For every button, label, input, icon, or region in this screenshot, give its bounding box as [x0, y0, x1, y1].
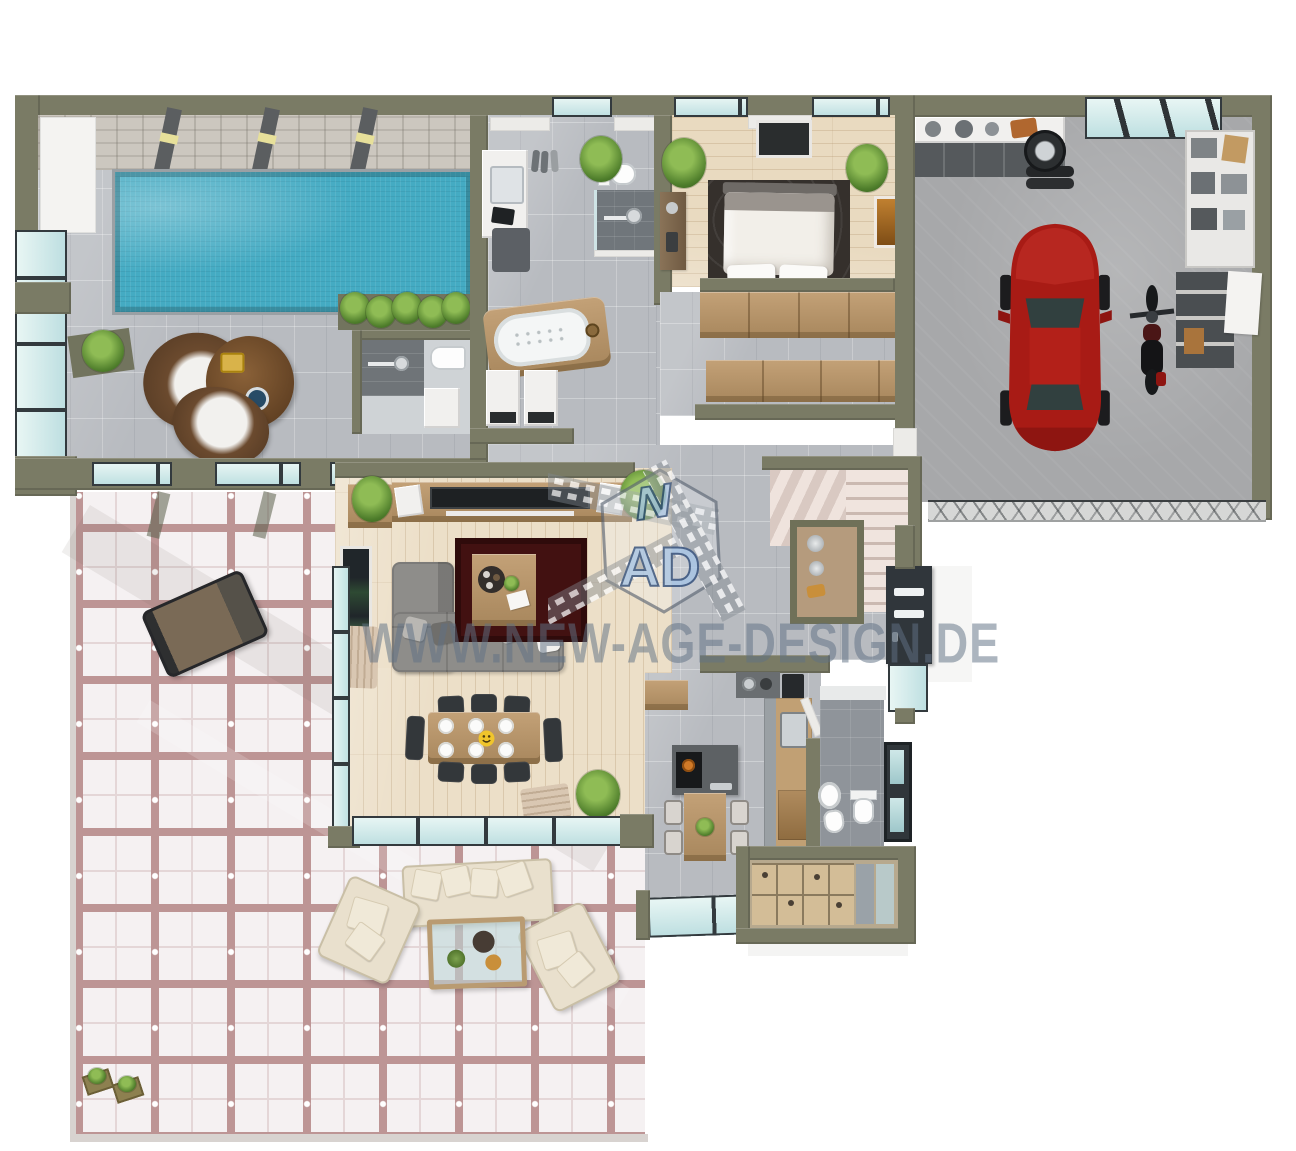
pool-glass-facade [15, 230, 67, 474]
roller-blind [40, 117, 96, 233]
kitchen-lower-window [647, 894, 748, 937]
floor-plan-render: N AD WWW.NEW-AGE-DESIGN.DE [0, 0, 1296, 1151]
living-left-glass [332, 566, 350, 828]
planter-plant [88, 1068, 106, 1084]
terrace-edge-bottom [70, 1134, 648, 1142]
terrace-window [92, 462, 172, 486]
inner-wall [614, 117, 656, 131]
speaker [394, 484, 424, 517]
guest-toilet [850, 790, 877, 825]
bedroom-window [674, 97, 748, 117]
wc-washbasin-unit [424, 388, 460, 428]
outer-wall-left-top [15, 95, 40, 235]
bar-stool [664, 830, 683, 855]
dining-chair [503, 761, 530, 782]
dining-bench [543, 718, 563, 763]
potted-plant [662, 138, 706, 188]
tire-rack [1022, 130, 1078, 198]
wardrobe-row [706, 360, 898, 402]
wc-window [884, 742, 912, 842]
entry-wall-stub2 [895, 708, 915, 724]
kitchen-wall-counter [764, 698, 812, 860]
table-plant [696, 818, 714, 836]
pool-wc-wall-left [352, 330, 362, 434]
wc-toilet [430, 346, 466, 370]
double-bed [721, 182, 837, 286]
kitchen-window-pier [636, 890, 650, 940]
washbasin [818, 782, 841, 809]
shoes [532, 150, 562, 176]
terrace-window [215, 462, 301, 486]
walk-in-shower [594, 190, 656, 252]
washing-machine [486, 370, 520, 426]
pool-shower [362, 340, 424, 396]
stair-wall-top [762, 456, 922, 470]
storage-wall-right [898, 846, 916, 944]
storage-wall-top [736, 846, 916, 860]
glass-coffee-table [427, 916, 527, 989]
bar-stool [664, 800, 683, 825]
dryer [524, 370, 558, 426]
stair-niche [790, 520, 864, 624]
brand-logo: N AD [548, 440, 783, 625]
watermark-text: WWW.NEW-AGE-DESIGN.DE [362, 610, 962, 676]
plate [498, 742, 514, 758]
bar-stool [730, 800, 749, 825]
dining-chair [437, 761, 464, 782]
bedroom-closet-wall [700, 278, 895, 292]
swimming-pool [115, 172, 471, 312]
bedroom-window [812, 97, 890, 117]
potted-plant [580, 136, 622, 182]
closet-bottom-wall [695, 404, 915, 420]
living-bottom-glass [352, 816, 638, 846]
storage-wall-bottom [736, 928, 916, 944]
white-board [1224, 271, 1262, 335]
motorcycle [1126, 284, 1178, 396]
living-bottom-pier [620, 814, 654, 848]
potted-plant [82, 330, 124, 372]
facade-pier [15, 282, 71, 314]
red-car [996, 220, 1114, 455]
terrace-edge-left [70, 492, 76, 1140]
dining-chair [471, 764, 497, 784]
shower-sill [594, 250, 656, 257]
plate [438, 742, 454, 758]
storage-unit [750, 860, 898, 928]
garage-door [928, 500, 1266, 522]
wardrobe-row [700, 292, 898, 338]
shower-head [394, 356, 409, 371]
wc-sill [820, 686, 886, 700]
garage-shelf [1185, 130, 1255, 268]
pool-wc-wall-top [352, 330, 474, 340]
storage-outside-step [748, 944, 908, 956]
bedroom-dresser [660, 192, 686, 270]
logo-letter-n: N [633, 474, 676, 532]
bedroom-wall-tv [756, 120, 812, 158]
bath-mat [492, 228, 530, 272]
potted-plant [576, 770, 620, 818]
entry-wall-stub [895, 525, 915, 569]
plate [438, 718, 454, 734]
dining-chair [471, 694, 497, 714]
outer-wall-top [15, 95, 1272, 117]
potted-plant [846, 144, 888, 192]
inner-wall [490, 117, 550, 131]
plate [498, 718, 514, 734]
planter-plant [118, 1076, 136, 1092]
dining-bench [405, 716, 425, 761]
vanity-unit [482, 150, 528, 238]
potted-plant [352, 476, 392, 522]
hedge-plant [442, 292, 470, 324]
corner-bathtub [482, 296, 612, 380]
kitchen-island [672, 745, 738, 795]
smiley-plate [478, 730, 495, 747]
logo-letters-ad: AD [620, 535, 701, 598]
entry-glass-door [552, 97, 612, 117]
